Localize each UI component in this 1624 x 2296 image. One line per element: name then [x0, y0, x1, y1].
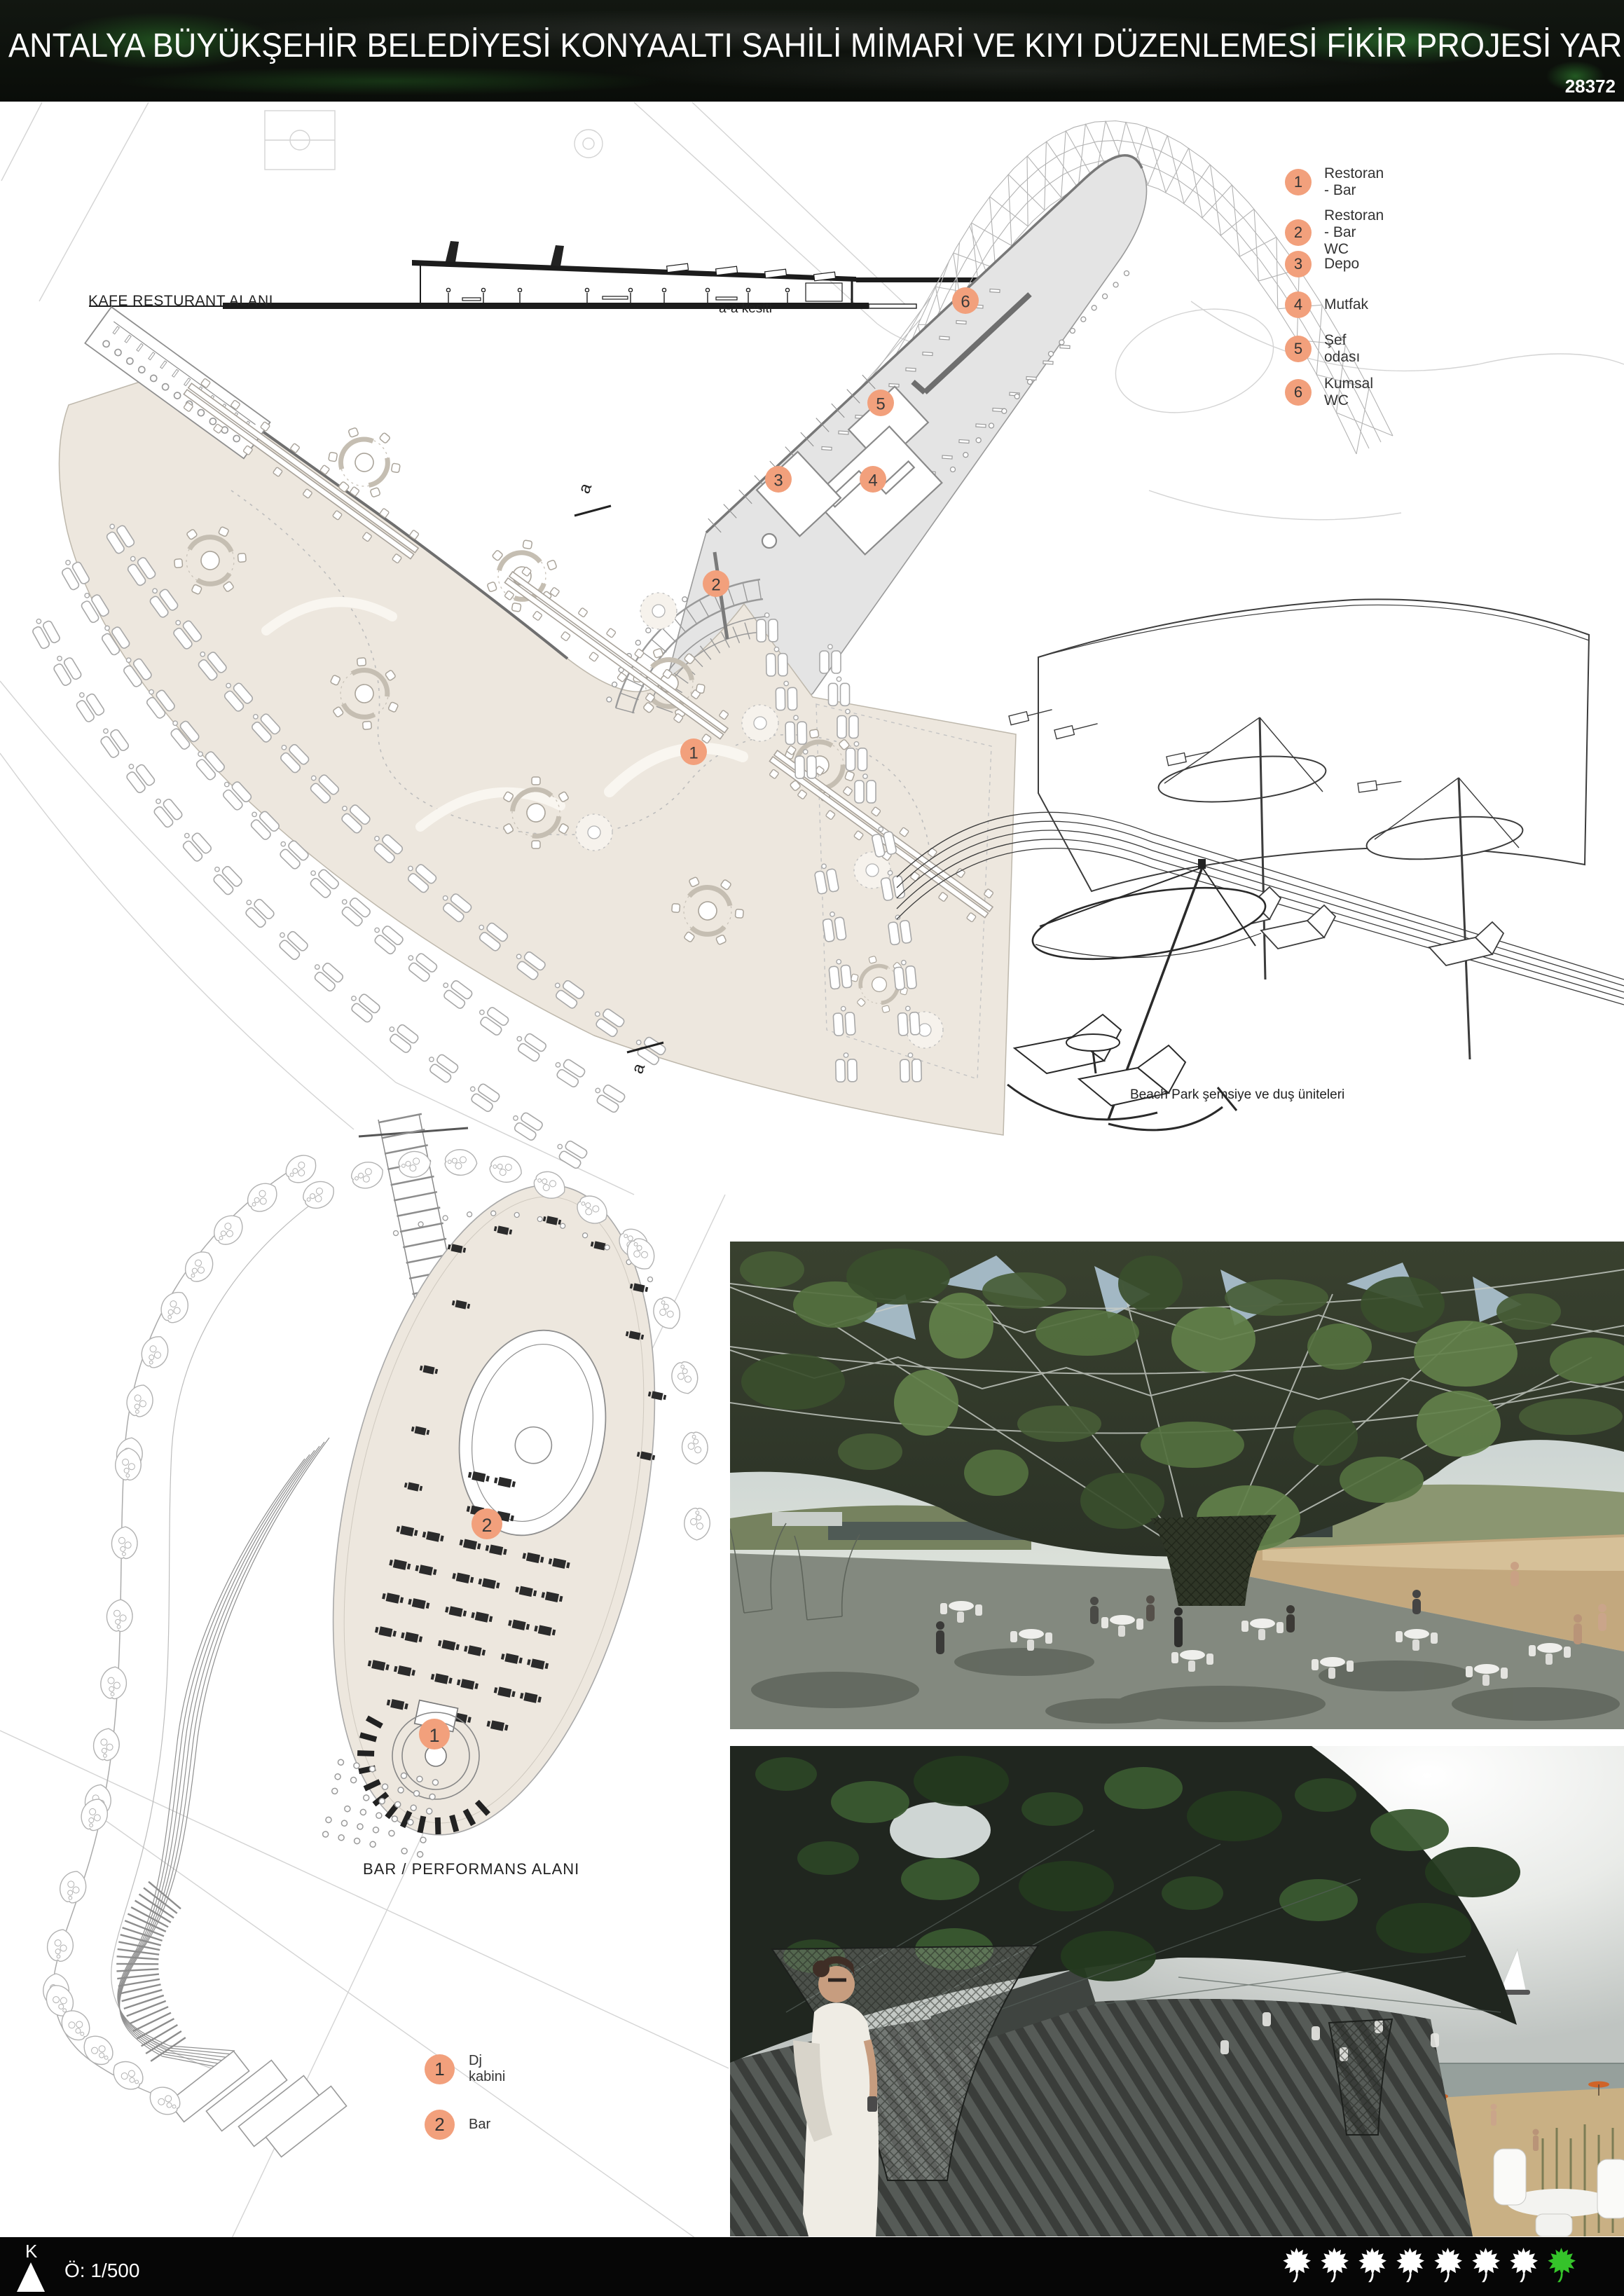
bar-plan-title: BAR / PERFORMANS ALANI	[363, 1860, 579, 1878]
leaf-icon	[1358, 2245, 1386, 2284]
svg-text:1: 1	[429, 1725, 439, 1746]
header-bar: ANTALYA BÜYÜKŞEHİR BELEDİYESİ KONYAALTI …	[0, 0, 1624, 102]
svg-text:3: 3	[773, 472, 783, 490]
plan-marker: 5	[867, 390, 894, 416]
section-caption: a-a kesiti	[719, 301, 772, 317]
legend-marker: 3	[1285, 251, 1312, 277]
render-photo-canopy-restaurant	[730, 1242, 1624, 1729]
legend-marker: 6	[1285, 379, 1312, 406]
board-title: ANTALYA BÜYÜKŞEHİR BELEDİYESİ KONYAALTI …	[8, 27, 1624, 65]
legend-item: 2Bar	[425, 2110, 490, 2140]
scale-label: Ö: 1/500	[64, 2260, 139, 2282]
plan-marker: 1	[419, 1719, 450, 1750]
svg-text:2: 2	[481, 1515, 492, 1536]
svg-text:5: 5	[876, 395, 885, 414]
entry-number: 28372	[1565, 76, 1616, 97]
legend-item: 4Mutfak	[1285, 291, 1368, 318]
plan-marker: 6	[952, 287, 979, 314]
north-label: K	[25, 2241, 37, 2262]
plan-marker: 2	[703, 570, 729, 597]
render-photo-beach-canopy	[730, 1746, 1624, 2236]
leaf-rating-row	[1282, 2245, 1576, 2284]
legend-marker: 2	[1285, 219, 1312, 246]
legend-marker: 2	[425, 2110, 455, 2140]
legend-marker: 4	[1285, 291, 1312, 318]
competition-board: a a 1 2 3 4 5 6 1 2 ANTALYA BÜYÜKŞEHİR B…	[0, 0, 1624, 2296]
svg-text:4: 4	[868, 472, 877, 490]
plan-marker: 4	[860, 466, 886, 493]
cut-letter-a-top: a	[574, 481, 596, 496]
legend-marker: 1	[425, 2054, 455, 2084]
plan-marker: 2	[472, 1508, 502, 1539]
leaf-icon	[1282, 2245, 1311, 2284]
beach-detail-caption: Beach Park şemsiye ve duş üniteleri	[1130, 1087, 1344, 1103]
leaf-icon-green	[1547, 2245, 1576, 2284]
plan-marker: 3	[765, 466, 792, 493]
legend-item: 1Dj kabini	[425, 2053, 505, 2085]
leaf-icon	[1433, 2245, 1462, 2284]
bar-performance-plan	[41, 1113, 710, 2157]
svg-text:6: 6	[961, 293, 970, 312]
legend-marker: 5	[1285, 336, 1312, 362]
leaf-icon	[1396, 2245, 1424, 2284]
legend-item: 1Restoran - Bar	[1285, 165, 1384, 199]
svg-text:1: 1	[689, 744, 698, 763]
kafe-area-label: KAFE RESTURANT ALANI	[88, 293, 273, 310]
legend-item: 6Kumsal WC	[1285, 376, 1373, 409]
plan-marker: 1	[680, 738, 707, 765]
svg-text:2: 2	[711, 576, 720, 595]
legend-item: 5Şef odası	[1285, 332, 1360, 366]
cut-letter-a-bottom: a	[628, 1061, 649, 1076]
north-arrow-icon	[17, 2262, 45, 2292]
leaf-icon	[1509, 2245, 1538, 2284]
legend-marker: 1	[1285, 169, 1312, 195]
leaf-icon	[1471, 2245, 1500, 2284]
legend-item: 3Depo	[1285, 251, 1359, 277]
leaf-icon	[1320, 2245, 1349, 2284]
